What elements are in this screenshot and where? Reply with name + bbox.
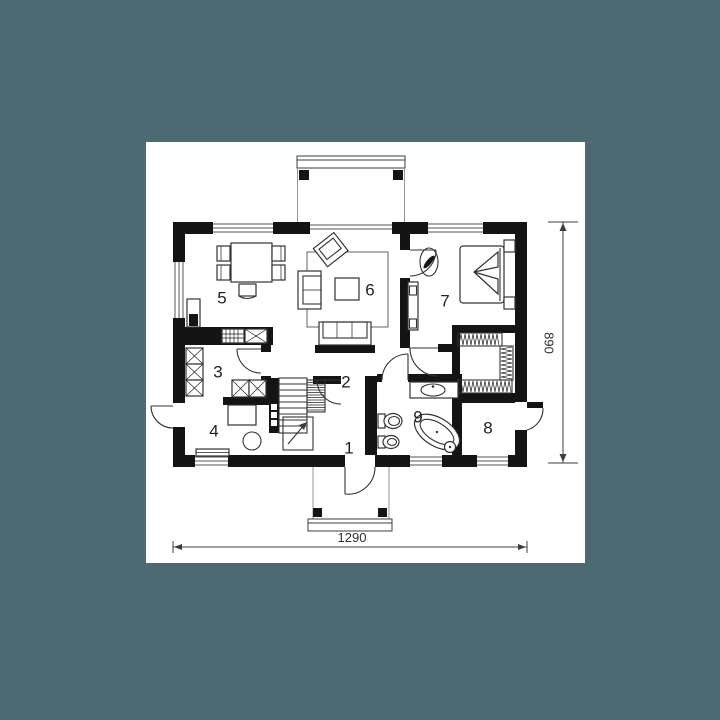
terrace-post-icon [299, 170, 309, 180]
washbasin-icon [410, 382, 458, 398]
cabinet-x-icon [232, 380, 266, 397]
porch-post-icon [313, 508, 322, 517]
room-label-4: 4 [209, 422, 218, 441]
nightstand-icon [504, 240, 515, 252]
cabinet-x-icon [186, 348, 203, 396]
terrace-post-icon [393, 170, 403, 180]
dining-chair-icon [217, 246, 230, 261]
dining-chair-icon [217, 265, 230, 280]
floor-plan-image: 1 2 3 4 5 6 7 8 9 1290 890 [0, 0, 720, 720]
room-label-8: 8 [483, 419, 492, 438]
bidet-icon [378, 436, 399, 449]
nightstand-icon [504, 297, 515, 309]
toilet-icon [378, 414, 402, 429]
dimension-height-label: 890 [542, 332, 557, 354]
dining-table-icon [231, 243, 272, 282]
dimension-width-label: 1290 [338, 530, 367, 545]
room-label-5: 5 [217, 289, 226, 308]
corner-sink-icon [445, 442, 456, 453]
dining-chair-icon [272, 246, 285, 261]
stove-icon [222, 329, 244, 343]
room-label-2: 2 [341, 373, 350, 392]
room-label-1: 1 [344, 439, 353, 458]
dining-chair-icon [239, 284, 256, 296]
room-label-3: 3 [213, 363, 222, 382]
room-label-7: 7 [440, 292, 449, 311]
room-label-9: 9 [413, 408, 422, 427]
room-label-6: 6 [365, 281, 374, 300]
wardrobe-icon [408, 282, 418, 330]
sofa-icon [298, 271, 321, 309]
coffee-table-icon [335, 278, 359, 300]
image-viewer-canvas: 1 2 3 4 5 6 7 8 9 1290 890 [0, 0, 720, 720]
dining-chair-icon [272, 265, 285, 280]
porch-post-icon [378, 508, 387, 517]
sofa-icon [319, 322, 371, 345]
table-icon [228, 405, 256, 425]
